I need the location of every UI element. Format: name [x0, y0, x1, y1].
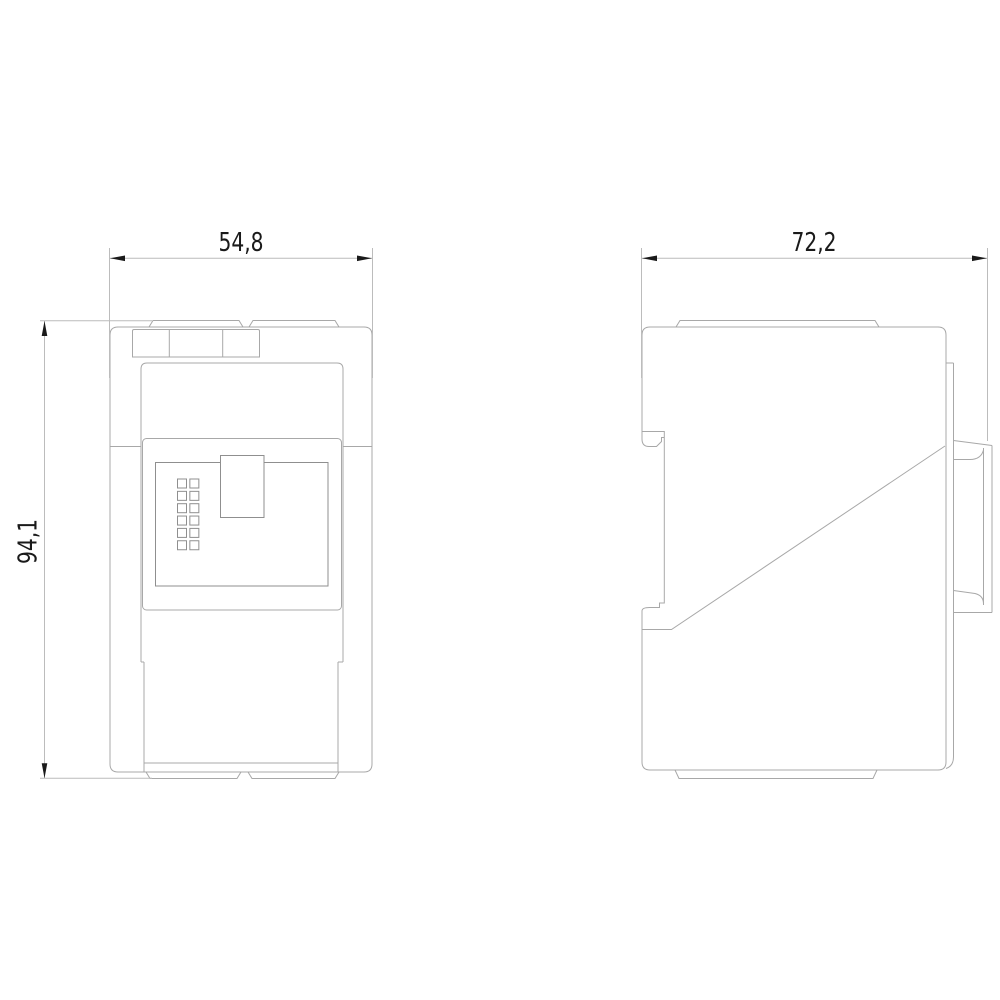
din-channel-top-hook [642, 432, 664, 447]
led-square [178, 516, 187, 525]
dimension-label-height: 94,1 [13, 519, 43, 564]
led-square [190, 491, 199, 500]
dimension-height: 94,1 [13, 321, 152, 779]
dimension-front-width: 54,8 [110, 228, 373, 378]
extension-lines [40, 321, 152, 779]
drawing-svg: 54,8 72,2 94,1 [0, 0, 1000, 1000]
dimension-label-front-width: 54,8 [218, 228, 263, 258]
side-top-tab [676, 321, 879, 328]
arrowhead-left [642, 256, 657, 262]
led-square [178, 541, 187, 550]
led-square [178, 491, 187, 500]
arrowhead-bottom [42, 763, 48, 778]
led-square [190, 541, 199, 550]
dimension-side-width: 72,2 [642, 228, 988, 441]
led-square [178, 504, 187, 513]
led-square [190, 516, 199, 525]
panel-latch-top [954, 441, 993, 460]
front-view [110, 321, 372, 779]
extension-lines [642, 248, 988, 441]
led-square [178, 528, 187, 537]
side-bottom-tab [675, 770, 877, 779]
lower-terminal-block [141, 662, 343, 772]
top-mounting-tab-left [149, 321, 243, 328]
front-flange [946, 363, 954, 769]
led-square [178, 479, 187, 488]
arrowhead-right [357, 256, 372, 262]
bottom-mounting-tab-left [146, 772, 241, 779]
arrowhead-left [110, 256, 125, 262]
top-mounting-tab-right [249, 321, 339, 328]
led-square [190, 528, 199, 537]
side-view [642, 321, 992, 779]
terminal-cover-wedge [642, 446, 945, 630]
technical-drawing-canvas: 54,8 72,2 94,1 [0, 0, 1000, 1000]
arrowhead-right [972, 256, 987, 262]
panel-latch-bottom [954, 591, 993, 613]
side-body-outline [642, 327, 946, 770]
dimension-label-side-width: 72,2 [791, 228, 836, 258]
arrowhead-top [42, 321, 48, 336]
bottom-mounting-tab-right [248, 772, 339, 779]
connector-slot [221, 456, 265, 518]
led-square [190, 479, 199, 488]
extension-lines [110, 248, 373, 378]
top-terminal-strip [133, 330, 260, 358]
led-square [190, 504, 199, 513]
